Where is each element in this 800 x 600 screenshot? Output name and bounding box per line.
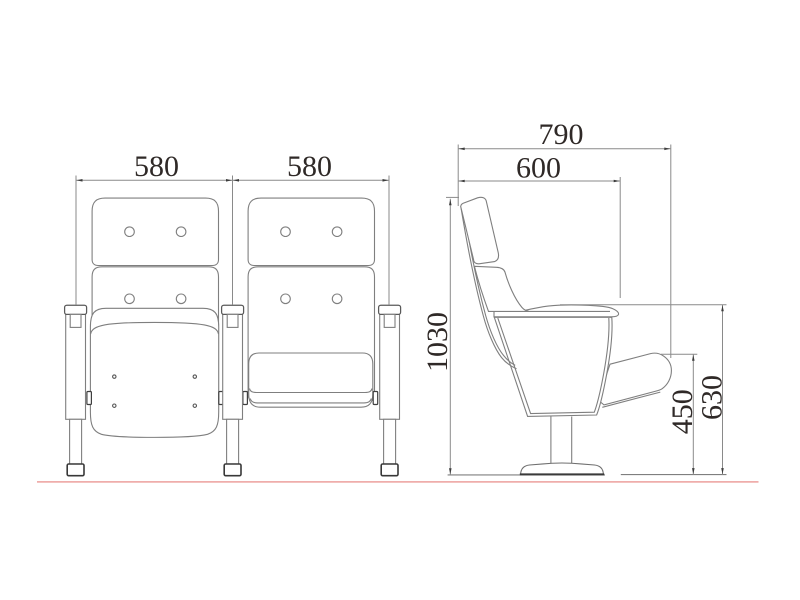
svg-text:580: 580 bbox=[134, 150, 179, 183]
svg-text:630: 630 bbox=[696, 375, 729, 420]
svg-text:580: 580 bbox=[287, 150, 332, 183]
svg-text:1030: 1030 bbox=[421, 312, 454, 372]
svg-text:600: 600 bbox=[516, 152, 561, 185]
svg-text:450: 450 bbox=[666, 389, 699, 434]
svg-text:790: 790 bbox=[539, 118, 584, 151]
